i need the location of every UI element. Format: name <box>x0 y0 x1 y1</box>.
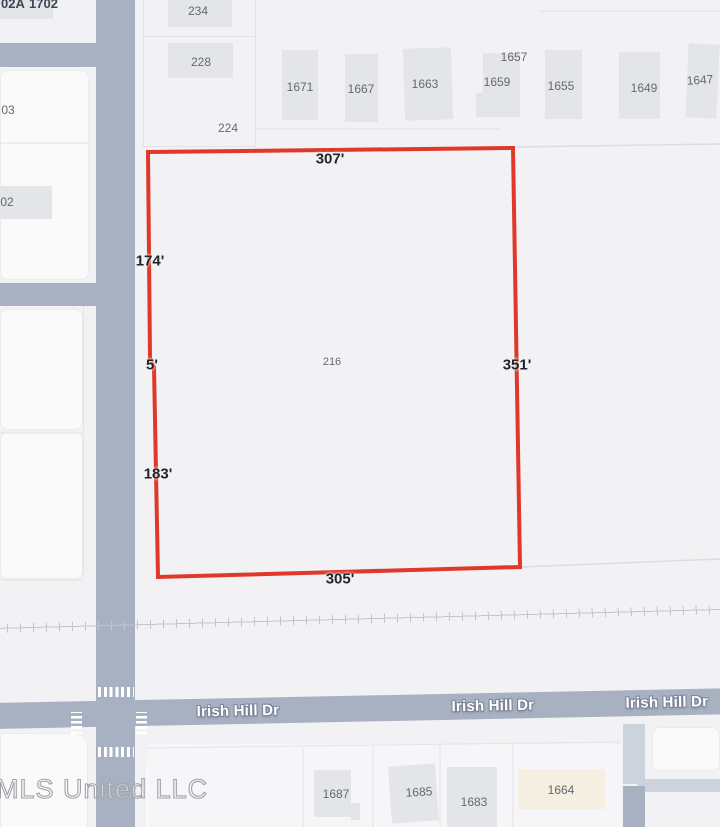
dimension-lower-left: 183' <box>144 466 173 483</box>
parcel-216-outline <box>0 0 720 827</box>
dimension-jog: 5' <box>146 357 158 374</box>
dimension-top: 307' <box>316 151 345 168</box>
dimension-right: 351' <box>503 357 532 374</box>
dimension-bottom: 305' <box>326 571 355 588</box>
map-canvas[interactable]: Irish Hill Dr Irish Hill Dr Irish Hill D… <box>0 0 720 827</box>
watermark-mls-united: MLS United LLC <box>0 774 208 805</box>
dimension-upper-left: 174' <box>136 253 165 270</box>
